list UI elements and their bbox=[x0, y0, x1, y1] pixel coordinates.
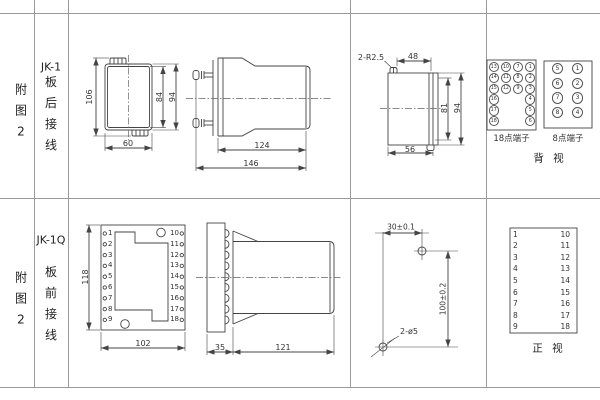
terminal-number: 11 bbox=[165, 239, 179, 250]
terminal-number: 12 bbox=[165, 250, 179, 261]
terminal-8-cell: 2 bbox=[572, 78, 583, 89]
wiring-label-top: 板 后 接 线 bbox=[45, 72, 57, 156]
table-cell: 7 bbox=[513, 298, 518, 310]
terminals-8-label: 8点端子 bbox=[553, 135, 584, 144]
wiring-char: 板 bbox=[45, 262, 57, 283]
figure-char: 图 bbox=[15, 101, 27, 122]
table-cell: 9 bbox=[513, 321, 518, 333]
terminal-number: 13 bbox=[165, 260, 179, 271]
terminal-18-cell: 3 bbox=[525, 84, 535, 94]
wiring-char: 接 bbox=[45, 114, 57, 135]
table-cell: 8 bbox=[513, 310, 518, 322]
terminal-18-cell: 18 bbox=[489, 116, 499, 126]
terminal-number: 9 bbox=[108, 314, 120, 325]
terminal-8-cell: 3 bbox=[572, 92, 583, 103]
wiring-char: 接 bbox=[45, 304, 57, 325]
terminal-18-cell: 11 bbox=[501, 73, 511, 83]
dim-35: 35 bbox=[215, 344, 225, 352]
jk1q-side-view-drawing bbox=[196, 223, 342, 355]
terminal-18-cell: 7 bbox=[513, 62, 523, 72]
table-cell: 13 bbox=[551, 263, 570, 275]
terminal-18-cell: 15 bbox=[489, 84, 499, 94]
table-cell: 14 bbox=[551, 275, 570, 287]
terminal-number: 18 bbox=[165, 314, 179, 325]
dim-56: 56 bbox=[405, 146, 415, 154]
table-cell: 3 bbox=[513, 252, 518, 264]
table-cell: 6 bbox=[513, 287, 518, 299]
terminal-grid-8: 5 1 6 2 7 3 8 4 bbox=[552, 63, 592, 122]
dim-94: 94 bbox=[169, 92, 177, 102]
terminal-number: 1 bbox=[108, 228, 120, 239]
terminal-number: 8 bbox=[108, 304, 120, 315]
jk1-front-view-drawing bbox=[93, 55, 179, 151]
figure-char: 附 bbox=[15, 268, 27, 289]
terminal-number: 17 bbox=[165, 304, 179, 315]
terminal-number: 4 bbox=[108, 260, 120, 271]
table-cell: 12 bbox=[551, 252, 570, 264]
dim-100: 100±0.2 bbox=[439, 283, 447, 316]
figure-char: 2 bbox=[15, 310, 27, 331]
dim-81: 81 bbox=[441, 103, 449, 113]
front-left-terminal-numbers: 1 2 3 4 5 6 7 8 9 bbox=[108, 228, 120, 325]
jk1-side-view-drawing bbox=[186, 58, 332, 171]
wiring-char: 线 bbox=[45, 325, 57, 346]
dim-118: 118 bbox=[82, 269, 90, 284]
front-view-label: 正 视 bbox=[532, 341, 565, 356]
terminal-18-cell: 16 bbox=[489, 94, 499, 104]
terminal-18-cell: 12 bbox=[501, 84, 511, 94]
terminal-grid-18: 13 10 7 1 14 11 8 2 15 12 9 3 16 4 17 5 … bbox=[489, 62, 538, 127]
dim-106: 106 bbox=[86, 89, 94, 104]
wiring-char: 后 bbox=[45, 93, 57, 114]
dim-124: 124 bbox=[254, 142, 269, 150]
terminal-18-cell: 14 bbox=[489, 73, 499, 83]
terminal-18-cell: 1 bbox=[525, 62, 535, 72]
terminal-8-cell: 5 bbox=[552, 63, 563, 74]
dim-48: 48 bbox=[408, 53, 418, 61]
terminal-18-cell: 2 bbox=[525, 73, 535, 83]
model-label-bottom: JK-1Q bbox=[37, 230, 66, 251]
wiring-char: 线 bbox=[45, 135, 57, 156]
line-art bbox=[0, 0, 600, 400]
figure-char: 2 bbox=[15, 122, 27, 143]
dim-30: 30±0.1 bbox=[387, 223, 415, 231]
terminal-number: 3 bbox=[108, 250, 120, 261]
table-cell: 10 bbox=[551, 229, 570, 241]
terminal-18-cell: 9 bbox=[513, 84, 523, 94]
hole-diameter-label: 2-ø5 bbox=[400, 328, 418, 336]
dim-94-rear: 94 bbox=[454, 103, 462, 113]
figure-char: 附 bbox=[15, 80, 27, 101]
dim-146: 146 bbox=[243, 160, 258, 168]
jk1-rear-view-drawing bbox=[380, 58, 465, 157]
dim-60: 60 bbox=[123, 140, 133, 148]
terminal-8-cell: 8 bbox=[552, 107, 563, 118]
wiring-char: 板 bbox=[45, 72, 57, 93]
table-cell: 11 bbox=[551, 240, 570, 252]
terminal-table-left-column: 1 2 3 4 5 6 7 8 9 bbox=[513, 229, 518, 333]
front-right-terminal-numbers: 10 11 12 13 14 15 16 17 18 bbox=[165, 228, 179, 325]
terminal-number: 14 bbox=[165, 271, 179, 282]
table-cell: 18 bbox=[551, 321, 570, 333]
terminal-number: 7 bbox=[108, 293, 120, 304]
table-cell: 5 bbox=[513, 275, 518, 287]
dim-102: 102 bbox=[135, 340, 150, 348]
table-cell: 4 bbox=[513, 263, 518, 275]
terminal-8-cell: 1 bbox=[572, 63, 583, 74]
wiring-char: 前 bbox=[45, 283, 57, 304]
terminal-18-cell: 5 bbox=[525, 105, 535, 115]
figure-label-top: 附 图 2 bbox=[15, 80, 27, 143]
terminal-8-cell: 4 bbox=[572, 107, 583, 118]
terminal-table-right-column: 10 11 12 13 14 15 16 17 18 bbox=[551, 229, 570, 333]
table-cell: 1 bbox=[513, 229, 518, 241]
terminal-number: 6 bbox=[108, 282, 120, 293]
terminal-number: 5 bbox=[108, 271, 120, 282]
wiring-label-bottom: 板 前 接 线 bbox=[45, 262, 57, 346]
table-cell: 15 bbox=[551, 287, 570, 299]
terminal-8-cell: 7 bbox=[552, 92, 563, 103]
terminal-18-cell: 17 bbox=[489, 105, 499, 115]
terminal-number: 2 bbox=[108, 239, 120, 250]
figure-char: 图 bbox=[15, 289, 27, 310]
terminal-18-cell: 10 bbox=[501, 62, 511, 72]
terminal-8-cell: 6 bbox=[552, 78, 563, 89]
label-2-r2-5: 2-R2.5 bbox=[358, 54, 384, 62]
table-cell: 2 bbox=[513, 240, 518, 252]
table-cell: 16 bbox=[551, 298, 570, 310]
terminal-18-cell: 13 bbox=[489, 62, 499, 72]
terminal-18-cell: 6 bbox=[525, 116, 535, 126]
figure-label-bottom: 附 图 2 bbox=[15, 268, 27, 331]
terminal-number: 16 bbox=[165, 293, 179, 304]
rear-view-label: 背 视 bbox=[533, 151, 566, 166]
model-text: JK-1Q bbox=[37, 230, 66, 251]
dim-121: 121 bbox=[275, 344, 290, 352]
terminal-number: 10 bbox=[165, 228, 179, 239]
terminal-18-cell: 4 bbox=[525, 94, 535, 104]
dim-84: 84 bbox=[156, 92, 164, 102]
table-cell: 17 bbox=[551, 310, 570, 322]
terminal-18-cell: 8 bbox=[513, 73, 523, 83]
terminal-number: 15 bbox=[165, 282, 179, 293]
terminals-18-label: 18点端子 bbox=[493, 135, 529, 144]
relay-dimension-sheet: 附 图 2 JK-1 板 后 接 线 附 图 2 JK-1Q 板 前 接 线 1… bbox=[0, 0, 600, 400]
